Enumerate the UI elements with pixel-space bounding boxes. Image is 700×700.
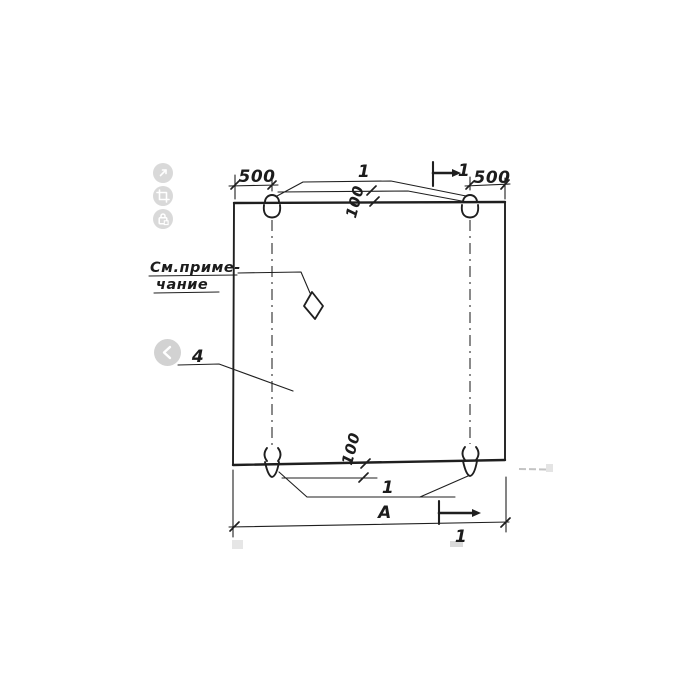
callout-panel: 4	[178, 347, 293, 391]
note-line2: чание	[156, 277, 208, 293]
section-mark-bottom: 1	[439, 501, 481, 547]
edge-inner-lines	[278, 191, 467, 478]
section-mark-top-label: 1	[458, 161, 470, 181]
dimension-top-left-500-label: 500	[239, 167, 276, 187]
prev-image-button[interactable]	[154, 339, 181, 366]
loop-axes	[272, 220, 470, 446]
panel-outline	[233, 202, 505, 465]
note-callout: См.приме- чание	[149, 260, 323, 319]
lifting-loop-top-left	[264, 195, 280, 218]
diamond-symbol	[304, 292, 323, 319]
dimension-overall-width-label: А	[376, 503, 392, 523]
protected-button[interactable]	[153, 209, 173, 229]
crop-button[interactable]	[153, 186, 173, 206]
dimension-overall-width: А	[229, 470, 510, 537]
dimension-bottom-100: 100	[338, 431, 370, 482]
callout-loops-bottom-label: 1	[382, 478, 394, 498]
lifting-loop-top-right	[462, 195, 478, 218]
dimension-top-100-label: 100	[342, 184, 368, 220]
panel-drawing: 1 100 500 500	[0, 0, 700, 700]
callout-loops-bottom: 1	[279, 472, 468, 498]
lock-icon	[153, 209, 173, 229]
callout-loops-top-label: 1	[358, 162, 370, 182]
callout-panel-label: 4	[191, 347, 204, 367]
lifting-loop-bottom-left	[265, 448, 281, 477]
faint-artifacts	[232, 464, 553, 549]
chevron-left-icon	[154, 339, 181, 366]
expand-button[interactable]	[153, 163, 173, 183]
crop-icon	[153, 186, 173, 206]
section-mark-top: 1	[433, 161, 470, 186]
section-mark-bottom-label: 1	[455, 527, 467, 547]
expand-icon	[153, 163, 173, 183]
note-line1: См.приме-	[150, 260, 241, 276]
dimension-top-100: 100	[342, 184, 379, 220]
drawing-viewer: 1 100 500 500	[0, 0, 700, 700]
dimension-top-right-500-label: 500	[474, 168, 511, 188]
